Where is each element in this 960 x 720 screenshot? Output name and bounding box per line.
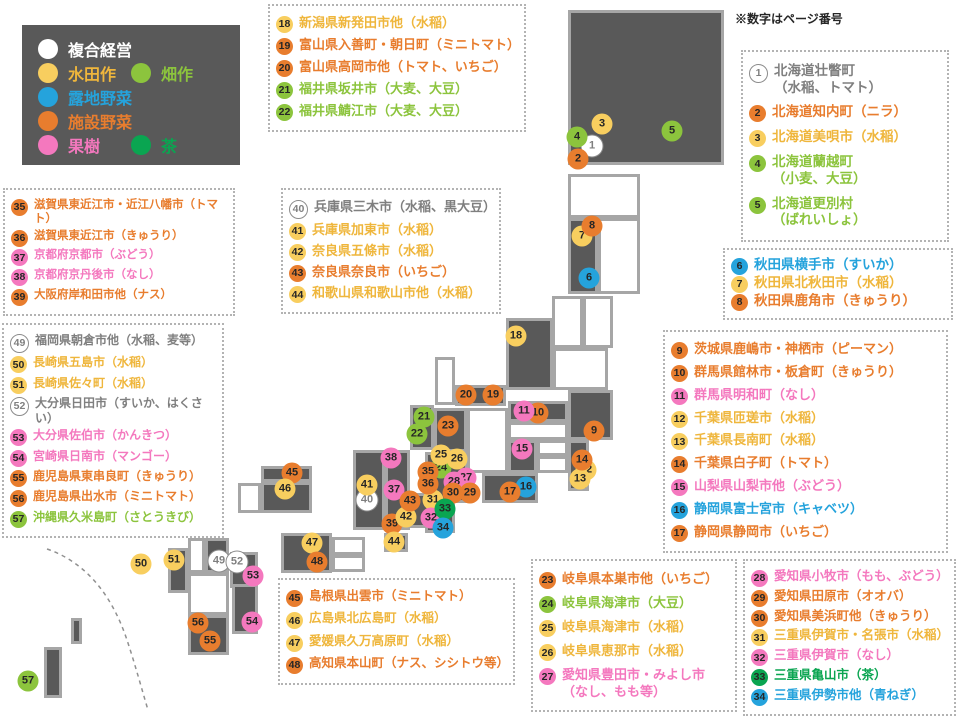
item-number-badge: 18 (276, 16, 293, 33)
map-marker-33: 33 (435, 499, 456, 520)
legend-row: 果樹茶 (38, 133, 224, 157)
item-label: 富山県高岡市他（トマト、いちご） (299, 59, 507, 75)
list-box-aichi: 28愛知県小牧市（もも、ぶどう）29愛知県田原市（オオバ）30愛知県美浜町他（き… (743, 559, 956, 716)
list-item-21: 21福井県坂井市（大麦、大豆） (276, 81, 518, 99)
item-label: 京都府京丹後市（なし） (34, 268, 161, 282)
map-marker-3: 3 (592, 114, 613, 135)
legend-label: 茶 (161, 133, 177, 157)
item-number-badge: 29 (751, 590, 768, 607)
list-item-48: 48高知県本山町（ナス、シシトウ等） (286, 656, 507, 674)
item-label: 和歌山県和歌山市他（水稲） (312, 285, 481, 301)
item-number-badge: 56 (10, 490, 27, 507)
map-marker-54: 54 (242, 612, 263, 633)
map-marker-48: 48 (307, 552, 328, 573)
map-marker-17: 17 (500, 482, 521, 503)
item-label: 愛知県美浜町他（きゅうり） (774, 609, 937, 625)
list-item-10: 10群馬県館林市・板倉町（きゅうり） (671, 364, 940, 382)
list-item-42: 42奈良県五條市（水稲） (289, 243, 493, 261)
item-label: 北海道更別村（ばれいしょ） (772, 196, 867, 230)
map-marker-44: 44 (384, 532, 405, 553)
list-item-29: 29愛知県田原市（オオバ） (751, 589, 948, 607)
item-number-badge: 25 (539, 620, 556, 637)
list-item-57: 57沖縄県久米島町（さとうきび） (10, 510, 216, 528)
list-item-19: 19富山県入善町・朝日町（ミニトマト） (276, 37, 518, 55)
map-marker-41: 41 (357, 475, 378, 496)
item-number-badge: 15 (671, 479, 688, 496)
item-number-badge: 44 (289, 286, 306, 303)
item-number-badge: 9 (671, 342, 688, 359)
item-label: 新潟県新発田市他（水稲） (299, 15, 455, 31)
legend-color-dot (38, 135, 58, 155)
list-item-27: 27愛知県豊田市・みよし市（なし、もも等） (539, 667, 729, 700)
map-tile-featured (71, 618, 82, 644)
map-marker-5: 5 (662, 121, 683, 142)
map-marker-8: 8 (582, 216, 603, 237)
item-label: 茨城県鹿嶋市・神栖市（ピーマン） (694, 341, 902, 357)
item-number-badge: 55 (10, 470, 27, 487)
list-item-12: 12千葉県匝瑳市（水稲） (671, 410, 940, 428)
item-label: 島根県出雲市（ミニトマト） (309, 589, 472, 605)
legend-color-dot (131, 63, 151, 83)
list-item-6: 6秋田県横手市（すいか） (731, 257, 945, 275)
map-marker-34: 34 (433, 518, 454, 539)
item-label: 福井県鯖江市（大麦、大豆） (299, 103, 468, 119)
item-label: 宮崎県日南市（マンゴー） (33, 449, 177, 464)
item-label: 三重県伊勢市他（青ねぎ） (774, 688, 924, 704)
item-label: 沖縄県久米島町（さとうきび） (33, 510, 201, 525)
map-marker-22: 22 (407, 424, 428, 445)
item-label: 大分県佐伯市（かんきつ） (33, 428, 177, 443)
map-marker-6: 6 (579, 268, 600, 289)
map-tile-plain (435, 357, 455, 405)
list-box-hyogo: 40兵庫県三木市（水稲、黒大豆）41兵庫県加東市（水稲）42奈良県五條市（水稲）… (281, 188, 501, 314)
item-number-badge: 7 (731, 276, 748, 293)
list-item-23: 23岐阜県本巣市他（いちご） (539, 571, 729, 589)
item-label: 福岡県朝倉市他（水稲、麦等） (35, 333, 203, 348)
item-number-badge: 34 (751, 689, 768, 706)
map-marker-9: 9 (584, 421, 605, 442)
item-number-badge: 57 (10, 511, 27, 528)
list-item-31: 31三重県伊賀市・名張市（水稲） (751, 628, 948, 646)
list-item-56: 56鹿児島県出水市（ミニトマト） (10, 489, 216, 507)
item-number-badge: 11 (671, 388, 688, 405)
list-item-36: 36滋賀県東近江市（きゅうり） (11, 229, 227, 247)
map-marker-55: 55 (200, 631, 221, 652)
map-marker-18: 18 (506, 326, 527, 347)
item-number-badge: 27 (539, 668, 556, 685)
item-label: 三重県伊賀市・名張市（水稲） (774, 628, 948, 644)
list-item-30: 30愛知県美浜町他（きゅうり） (751, 609, 948, 627)
legend-color-dot (38, 87, 58, 107)
item-number-badge: 2 (749, 105, 766, 122)
item-number-badge: 43 (289, 265, 306, 282)
list-box-kanto: 9茨城県鹿嶋市・神栖市（ピーマン）10群馬県館林市・板倉町（きゅうり）11群馬県… (663, 330, 948, 553)
item-label: 滋賀県東近江市（きゅうり） (34, 229, 184, 243)
map-marker-43: 43 (400, 491, 421, 512)
item-number-badge: 38 (11, 269, 28, 286)
map-marker-14: 14 (572, 450, 593, 471)
list-box-akita: 6秋田県横手市（すいか）7秋田県北秋田市（水稲）8秋田県鹿角市（きゅうり） (723, 248, 953, 320)
list-item-8: 8秋田県鹿角市（きゅうり） (731, 293, 945, 311)
list-item-46: 46広島県北広島町（水稲） (286, 611, 507, 629)
map-tile-plain (583, 296, 613, 348)
item-label: 北海道蘭越町（小麦、大豆） (772, 154, 867, 188)
legend-label: 果樹 (68, 133, 100, 157)
item-number-badge: 52 (10, 397, 29, 416)
map-marker-4: 4 (567, 127, 588, 148)
map-marker-50: 50 (131, 554, 152, 575)
item-label: 高知県本山町（ナス、シシトウ等） (309, 656, 507, 672)
item-label: 秋田県北秋田市（水稲） (754, 275, 903, 292)
item-label: 千葉県長南町（水稲） (694, 432, 824, 448)
list-item-25: 25岐阜県海津市（水稲） (539, 619, 729, 637)
list-item-54: 54宮崎県日南市（マンゴー） (10, 449, 216, 467)
item-label: 愛知県田原市（オオバ） (774, 589, 912, 605)
list-item-15: 15山梨県山梨市他（ぶどう） (671, 478, 940, 496)
map-marker-36: 36 (418, 474, 439, 495)
list-box-kyushu: 49福岡県朝倉市他（水稲、麦等）50長崎県五島市（水稲）51長崎県佐々町（水稲）… (2, 323, 224, 538)
item-label: 千葉県白子町（トマト） (694, 455, 837, 471)
legend-item: 露地野菜 (38, 85, 166, 109)
list-item-2: 2北海道知内町（ニラ） (749, 104, 941, 122)
item-label: 北海道知内町（ニラ） (772, 104, 907, 121)
item-label: 三重県伊賀市（なし） (774, 648, 899, 664)
legend-color-dot (38, 111, 58, 131)
legend-label: 露地野菜 (68, 85, 132, 109)
map-tile-plain (332, 537, 365, 555)
item-number-badge: 10 (671, 365, 688, 382)
legend-row: 施設野菜 (38, 109, 224, 133)
item-label: 秋田県鹿角市（きゅうり） (754, 293, 916, 310)
item-label: 山梨県山梨市他（ぶどう） (694, 478, 850, 494)
item-label: 愛知県小牧市（もも、ぶどう） (774, 569, 948, 585)
item-label: 大分県日田市（すいか、はくさい） (35, 396, 216, 426)
legend-label: 複合経営 (68, 37, 132, 61)
item-label: 富山県入善町・朝日町（ミニトマト） (299, 37, 518, 53)
item-number-badge: 51 (10, 377, 27, 394)
item-number-badge: 46 (286, 612, 303, 629)
list-item-45: 45島根県出雲市（ミニトマト） (286, 589, 507, 607)
item-label: 群馬県明和町（なし） (694, 387, 824, 403)
item-number-badge: 8 (731, 294, 748, 311)
map-marker-56: 56 (188, 613, 209, 634)
item-number-badge: 31 (751, 629, 768, 646)
item-number-badge: 3 (749, 130, 766, 147)
item-number-badge: 24 (539, 596, 556, 613)
list-box-shiga: 35滋賀県東近江市・近江八幡市（トマト）36滋賀県東近江市（きゅうり）37京都府… (3, 188, 235, 316)
map-marker-2: 2 (568, 149, 589, 170)
item-number-badge: 1 (749, 64, 768, 83)
item-label: 岐阜県海津市（水稲） (562, 619, 692, 635)
item-number-badge: 23 (539, 572, 556, 589)
japan-agriculture-map-slide: 1234567891011121314151617181920212223242… (0, 0, 960, 720)
item-label: 兵庫県加東市（水稲） (312, 222, 442, 238)
list-item-33: 33三重県亀山市（茶） (751, 668, 948, 686)
item-label: 福井県坂井市（大麦、大豆） (299, 81, 468, 97)
legend-color-dot (38, 63, 58, 83)
list-item-4: 4北海道蘭越町（小麦、大豆） (749, 154, 941, 188)
item-number-badge: 32 (751, 649, 768, 666)
list-item-41: 41兵庫県加東市（水稲） (289, 222, 493, 240)
list-item-51: 51長崎県佐々町（水稲） (10, 376, 216, 394)
item-number-badge: 37 (11, 249, 28, 266)
legend-label: 畑作 (161, 61, 193, 85)
legend-color-dot (131, 135, 151, 155)
legend-item: 施設野菜 (38, 109, 166, 133)
item-number-badge: 19 (276, 38, 293, 55)
map-tile-plain (188, 573, 229, 615)
list-item-11: 11群馬県明和町（なし） (671, 387, 940, 405)
item-label: 大阪府岸和田市他（ナス） (34, 288, 172, 302)
map-marker-53: 53 (243, 566, 264, 587)
map-tile-plain (188, 538, 205, 573)
list-item-3: 3北海道美唄市（水稲） (749, 129, 941, 147)
item-label: 鹿児島県東串良町（きゅうり） (33, 469, 201, 484)
list-box-hokkaido: 1北海道壮瞥町（水稲、トマト）2北海道知内町（ニラ）3北海道美唄市（水稲）4北海… (741, 50, 949, 242)
list-item-40: 40兵庫県三木市（水稲、黒大豆） (289, 199, 493, 219)
list-item-52: 52大分県日田市（すいか、はくさい） (10, 396, 216, 426)
item-label: 奈良県五條市（水稲） (312, 243, 442, 259)
list-item-39: 39大阪府岸和田市他（ナス） (11, 288, 227, 306)
legend-item: 茶 (131, 133, 224, 157)
item-number-badge: 6 (731, 258, 748, 275)
map-tile-plain (552, 296, 583, 348)
list-item-34: 34三重県伊勢市他（青ねぎ） (751, 688, 948, 706)
map-marker-38: 38 (381, 448, 402, 469)
item-label: 愛媛県久万高原町（水稲） (309, 634, 459, 650)
legend-item: 畑作 (131, 61, 224, 85)
list-item-9: 9茨城県鹿嶋市・神栖市（ピーマン） (671, 341, 940, 359)
item-number-badge: 42 (289, 244, 306, 261)
list-item-18: 18新潟県新発田市他（水稲） (276, 15, 518, 33)
item-label: 静岡県静岡市（いちご） (694, 524, 837, 540)
item-number-badge: 13 (671, 433, 688, 450)
item-label: 奈良県奈良市（いちご） (312, 264, 455, 280)
item-label: 兵庫県三木市（水稲、黒大豆） (314, 199, 493, 215)
item-number-badge: 12 (671, 411, 688, 428)
map-marker-51: 51 (164, 550, 185, 571)
list-item-35: 35滋賀県東近江市・近江八幡市（トマト） (11, 198, 227, 227)
list-item-7: 7秋田県北秋田市（水稲） (731, 275, 945, 293)
legend-label: 水田作 (68, 61, 116, 85)
item-number-badge: 4 (749, 155, 766, 172)
item-number-badge: 20 (276, 60, 293, 77)
item-number-badge: 54 (10, 450, 27, 467)
map-tile-plain (508, 422, 568, 440)
list-item-13: 13千葉県長南町（水稲） (671, 432, 940, 450)
item-label: 長崎県佐々町（水稲） (33, 376, 153, 391)
item-label: 群馬県館林市・板倉町（きゅうり） (694, 364, 902, 380)
item-number-badge: 28 (751, 570, 768, 587)
item-label: 長崎県五島市（水稲） (33, 355, 153, 370)
item-number-badge: 50 (10, 356, 27, 373)
list-item-55: 55鹿児島県東串良町（きゅうり） (10, 469, 216, 487)
map-tile-plain (537, 440, 568, 456)
list-item-47: 47愛媛県久万高原町（水稲） (286, 634, 507, 652)
list-item-28: 28愛知県小牧市（もも、ぶどう） (751, 569, 948, 587)
item-label: 愛知県豊田市・みよし市（なし、もも等） (562, 667, 705, 700)
map-tile-plain (553, 348, 608, 390)
map-tile-plain (332, 555, 365, 572)
item-number-badge: 16 (671, 502, 688, 519)
list-item-22: 22福井県鯖江市（大麦、大豆） (276, 103, 518, 121)
list-item-24: 24岐阜県海津市（大豆） (539, 595, 729, 613)
list-item-38: 38京都府京丹後市（なし） (11, 268, 227, 286)
legend-row: 露地野菜 (38, 85, 224, 109)
list-item-49: 49福岡県朝倉市他（水稲、麦等） (10, 333, 216, 353)
item-label: 広島県北広島町（水稲） (309, 611, 447, 627)
list-box-hokuriku: 18新潟県新発田市他（水稲）19富山県入善町・朝日町（ミニトマト）20富山県高岡… (268, 4, 526, 132)
item-number-badge: 5 (749, 197, 766, 214)
legend-color-dot (38, 39, 58, 59)
map-marker-19: 19 (483, 385, 504, 406)
legend-item: 水田作 (38, 61, 131, 85)
map-tile-plain (598, 218, 640, 294)
item-number-badge: 17 (671, 525, 688, 542)
list-item-32: 32三重県伊賀市（なし） (751, 648, 948, 666)
list-item-16: 16静岡県富士宮市（キャベツ） (671, 501, 940, 519)
list-item-43: 43奈良県奈良市（いちご） (289, 264, 493, 282)
map-marker-13: 13 (570, 469, 591, 490)
item-label: 京都府京都市（ぶどう） (34, 248, 161, 262)
legend-label: 施設野菜 (68, 109, 132, 133)
item-number-badge: 33 (751, 669, 768, 686)
legend-item: 果樹 (38, 133, 131, 157)
item-number-badge: 47 (286, 635, 303, 652)
item-label: 鹿児島県出水市（ミニトマト） (33, 489, 201, 504)
item-label: 岐阜県海津市（大豆） (562, 595, 692, 611)
item-label: 北海道壮瞥町（水稲、トマト） (774, 63, 882, 97)
item-label: 秋田県横手市（すいか） (754, 257, 903, 274)
map-marker-23: 23 (438, 416, 459, 437)
item-label: 岐阜県恵那市（水稲） (562, 643, 692, 659)
map-tile-plain (238, 483, 261, 513)
map-marker-57: 57 (18, 671, 39, 692)
list-item-20: 20富山県高岡市他（トマト、いちご） (276, 59, 518, 77)
item-number-badge: 30 (751, 610, 768, 627)
item-number-badge: 39 (11, 289, 28, 306)
list-box-chugoku: 45島根県出雲市（ミニトマト）46広島県北広島町（水稲）47愛媛県久万高原町（水… (278, 578, 515, 685)
map-marker-46: 46 (275, 479, 296, 500)
map-tile-plain (568, 174, 640, 218)
item-number-badge: 36 (11, 230, 28, 247)
list-item-53: 53大分県佐伯市（かんきつ） (10, 428, 216, 446)
item-number-badge: 14 (671, 456, 688, 473)
item-number-badge: 45 (286, 590, 303, 607)
list-item-37: 37京都府京都市（ぶどう） (11, 248, 227, 266)
map-tile-plain (467, 408, 508, 473)
item-label: 三重県亀山市（茶） (774, 668, 887, 684)
item-label: 滋賀県東近江市・近江八幡市（トマト） (34, 198, 227, 227)
list-item-1: 1北海道壮瞥町（水稲、トマト） (749, 63, 941, 97)
page-number-note: ※数字はページ番号 (735, 10, 843, 27)
item-number-badge: 53 (10, 429, 27, 446)
list-item-26: 26岐阜県恵那市（水稲） (539, 643, 729, 661)
list-box-gifu: 23岐阜県本巣市他（いちご）24岐阜県海津市（大豆）25岐阜県海津市（水稲）26… (531, 559, 737, 712)
list-item-44: 44和歌山県和歌山市他（水稲） (289, 285, 493, 303)
item-number-badge: 41 (289, 223, 306, 240)
list-item-5: 5北海道更別村（ばれいしょ） (749, 196, 941, 230)
map-marker-26: 26 (447, 449, 468, 470)
legend-row: 複合経営 (38, 37, 224, 61)
item-number-badge: 40 (289, 200, 308, 219)
item-label: 北海道美唄市（水稲） (772, 129, 907, 146)
list-item-14: 14千葉県白子町（トマト） (671, 455, 940, 473)
list-item-17: 17静岡県静岡市（いちご） (671, 524, 940, 542)
map-marker-20: 20 (456, 385, 477, 406)
item-label: 岐阜県本巣市他（いちご） (562, 571, 718, 587)
legend-row: 水田作畑作 (38, 61, 224, 85)
map-tile-featured (44, 647, 62, 698)
list-item-50: 50長崎県五島市（水稲） (10, 355, 216, 373)
item-label: 千葉県匝瑳市（水稲） (694, 410, 824, 426)
map-marker-11: 11 (514, 401, 535, 422)
legend: 複合経営水田作畑作露地野菜施設野菜果樹茶 (22, 25, 240, 165)
item-number-badge: 48 (286, 657, 303, 674)
item-number-badge: 49 (10, 334, 29, 353)
map-tile-plain (537, 456, 568, 473)
item-number-badge: 21 (276, 82, 293, 99)
map-marker-47: 47 (302, 533, 323, 554)
map-marker-15: 15 (512, 439, 533, 460)
item-number-badge: 22 (276, 104, 293, 121)
item-number-badge: 35 (11, 199, 28, 216)
item-number-badge: 26 (539, 644, 556, 661)
legend-item: 複合経営 (38, 37, 166, 61)
item-label: 静岡県富士宮市（キャベツ） (694, 501, 863, 517)
